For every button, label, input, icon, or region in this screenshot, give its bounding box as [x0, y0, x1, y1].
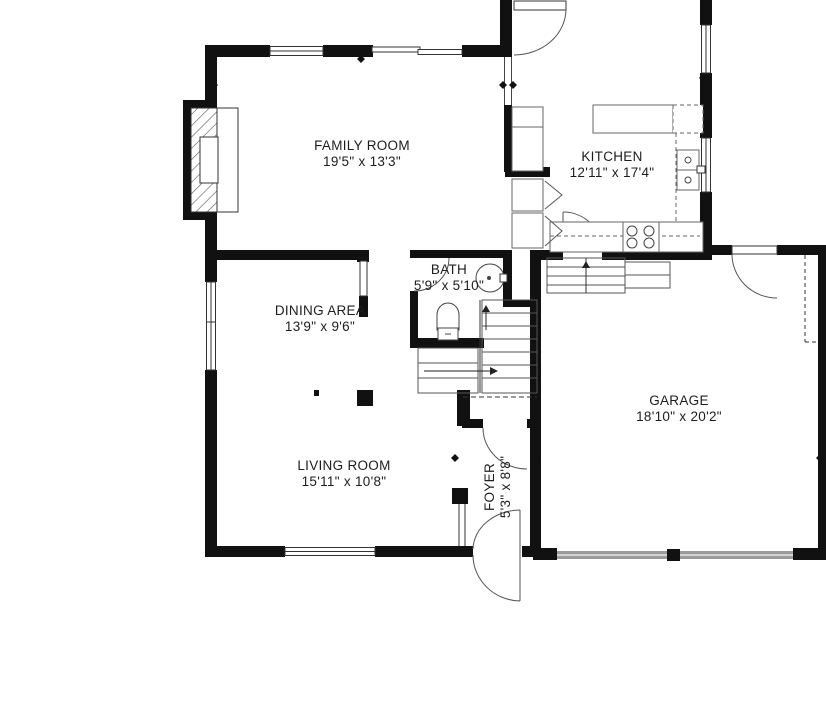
closet-door-chevron-1	[545, 181, 562, 209]
room-name: DINING AREA	[275, 303, 365, 319]
stairs-upper-flight	[482, 300, 537, 393]
living-room-post	[357, 390, 373, 406]
kitchen-stove	[623, 222, 659, 252]
door-kitchen-top-arc	[514, 9, 566, 55]
window-dining-pier	[360, 261, 367, 296]
door-kitchen-top-panel	[514, 1, 566, 10]
room-name: GARAGE	[636, 393, 722, 409]
room-name: FOYER	[482, 456, 498, 518]
kitchen-peninsula-counter	[593, 105, 673, 133]
garage-steps-up-arrow	[582, 261, 590, 268]
window-family-top-2b	[418, 50, 462, 55]
room-dims: 15'11" x 10'8"	[297, 474, 390, 490]
front-door-arc-out	[473, 555, 520, 601]
room-label-living-room: LIVING ROOM 15'11" x 10'8"	[297, 458, 390, 490]
room-label-garage: GARAGE 18'10" x 20'2"	[636, 393, 722, 425]
room-name: LIVING ROOM	[297, 458, 390, 474]
hearth	[217, 108, 238, 212]
hall-closet-1	[512, 179, 543, 211]
room-label-dining-area: DINING AREA 13'9" x 9'6"	[275, 303, 365, 335]
room-name: BATH	[414, 262, 484, 278]
living-room-small-marker	[314, 390, 319, 396]
room-dims: 13'9" x 9'6"	[275, 319, 365, 335]
staircase	[418, 300, 537, 397]
room-dims: 19'5" x 13'3"	[314, 154, 410, 170]
opening-family-kitchen	[505, 57, 512, 105]
kitchen-sink	[677, 150, 705, 190]
faucet	[697, 166, 705, 173]
window-family-top-2a	[372, 47, 420, 52]
room-name: KITCHEN	[570, 149, 655, 165]
doors	[414, 1, 777, 601]
door-garage-service-panel	[732, 246, 777, 254]
hall-closet-2	[512, 213, 543, 248]
room-label-bath: BATH 5'9" x 5'10"	[414, 262, 484, 294]
room-label-foyer: FOYER 5'3" x 8'8"	[482, 456, 514, 518]
stairs-direction-arrow	[424, 367, 498, 375]
toilet	[437, 303, 459, 340]
fireplace	[191, 108, 238, 212]
room-label-family-room: FAMILY ROOM 19'5" x 13'3"	[314, 138, 410, 170]
room-dims: 5'3" x 8'8"	[498, 456, 514, 518]
garage-door-center-post	[667, 549, 680, 561]
door-garage-service-arc	[732, 254, 777, 298]
floor-plan-drawing	[0, 0, 826, 720]
kitchen-cabinet-tall	[512, 127, 543, 171]
room-name: FAMILY ROOM	[314, 138, 410, 154]
floor-plan: FAMILY ROOM 19'5" x 13'3" KITCHEN 12'11"…	[0, 0, 826, 720]
room-dims: 5'9" x 5'10"	[414, 278, 484, 294]
foyer-post	[452, 488, 468, 504]
room-dims: 12'11" x 17'4"	[570, 165, 655, 181]
garage-dashed-storage	[805, 255, 818, 342]
room-label-kitchen: KITCHEN 12'11" x 17'4"	[570, 149, 655, 181]
kitchen-counter-dashed-corner	[673, 105, 703, 133]
firebox	[200, 137, 218, 183]
garage-door	[557, 549, 793, 561]
garage-steps	[547, 258, 670, 293]
kitchen-refrigerator	[512, 107, 543, 127]
room-dims: 18'10" x 20'2"	[636, 409, 722, 425]
